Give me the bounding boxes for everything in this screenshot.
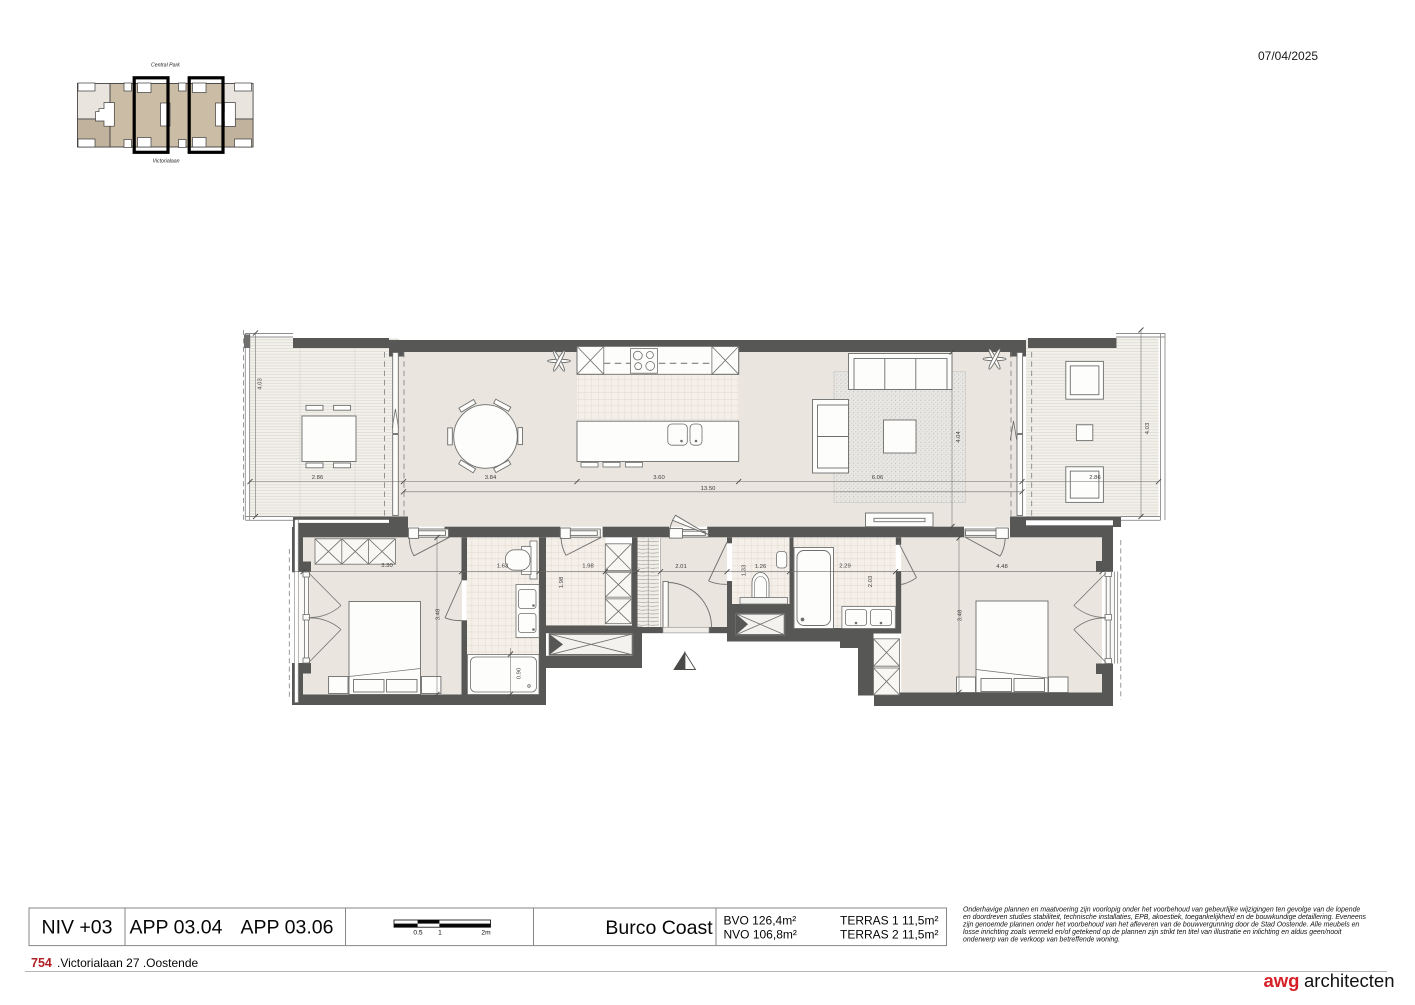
svg-text:3.48: 3.48	[958, 609, 964, 621]
svg-text:.Victorialaan 27 .Oostende: .Victorialaan 27 .Oostende	[57, 956, 199, 970]
svg-text:2.03: 2.03	[868, 575, 874, 587]
svg-text:4.03: 4.03	[1145, 422, 1151, 434]
svg-text:2.86: 2.86	[1089, 475, 1101, 481]
svg-text:APP 03.06: APP 03.06	[241, 917, 334, 939]
svg-text:754: 754	[31, 956, 52, 970]
svg-text:1: 1	[438, 930, 442, 937]
svg-text:TERRAS 2 11,5m²: TERRAS 2 11,5m²	[840, 928, 938, 942]
svg-text:onderwerp van de verkoop van b: onderwerp van de verkoop van betreffende…	[963, 937, 1120, 944]
svg-text:3.48: 3.48	[436, 608, 442, 620]
svg-text:TERRAS 1 11,5m²: TERRAS 1 11,5m²	[840, 914, 938, 928]
svg-text:losse inrichting zoals vermeld: losse inrichting zoals vermeld en/of get…	[963, 929, 1343, 936]
svg-text:2.01: 2.01	[675, 564, 686, 570]
svg-text:Onderhavige plannen en maatvoe: Onderhavige plannen en maatvoering zijn …	[963, 907, 1360, 914]
svg-text:0.5: 0.5	[413, 930, 422, 937]
svg-text:NVO 106,8m²: NVO 106,8m²	[724, 928, 797, 942]
svg-text:NIV +03: NIV +03	[41, 917, 112, 939]
svg-text:2.29: 2.29	[839, 564, 850, 570]
svg-text:1.98: 1.98	[559, 576, 565, 588]
svg-text:BVO 126,4m²: BVO 126,4m²	[724, 914, 797, 928]
svg-text:awg: awg	[1264, 970, 1300, 991]
svg-text:07/04/2025: 07/04/2025	[1258, 49, 1318, 63]
svg-text:1.98: 1.98	[582, 564, 594, 570]
svg-text:6.06: 6.06	[872, 475, 884, 481]
svg-text:4.48: 4.48	[996, 564, 1008, 570]
svg-text:1.33: 1.33	[742, 564, 748, 576]
svg-text:1.26: 1.26	[755, 564, 767, 570]
svg-text:3.84: 3.84	[485, 475, 497, 481]
svg-text:Victorialaan: Victorialaan	[153, 159, 180, 165]
svg-text:3.30: 3.30	[381, 563, 393, 569]
svg-text:2m: 2m	[481, 930, 491, 937]
svg-text:3.60: 3.60	[653, 475, 665, 481]
svg-text:architecten: architecten	[1304, 970, 1395, 991]
svg-text:2.86: 2.86	[312, 475, 324, 481]
svg-text:Central Park: Central Park	[151, 63, 180, 69]
svg-text:13.50: 13.50	[701, 486, 716, 492]
svg-text:APP 03.04: APP 03.04	[130, 917, 223, 939]
svg-text:zijn genoemde plannen onder he: zijn genoemde plannen onder het voorbeho…	[962, 922, 1359, 929]
svg-text:0.90: 0.90	[517, 667, 523, 679]
svg-text:en doordreven studies stabilit: en doordreven studies stabiliteit, techn…	[963, 914, 1367, 921]
svg-text:4.03: 4.03	[258, 378, 264, 390]
svg-text:Burco Coast: Burco Coast	[605, 917, 713, 939]
svg-text:4.04: 4.04	[956, 431, 962, 443]
svg-text:1.63: 1.63	[497, 564, 509, 570]
